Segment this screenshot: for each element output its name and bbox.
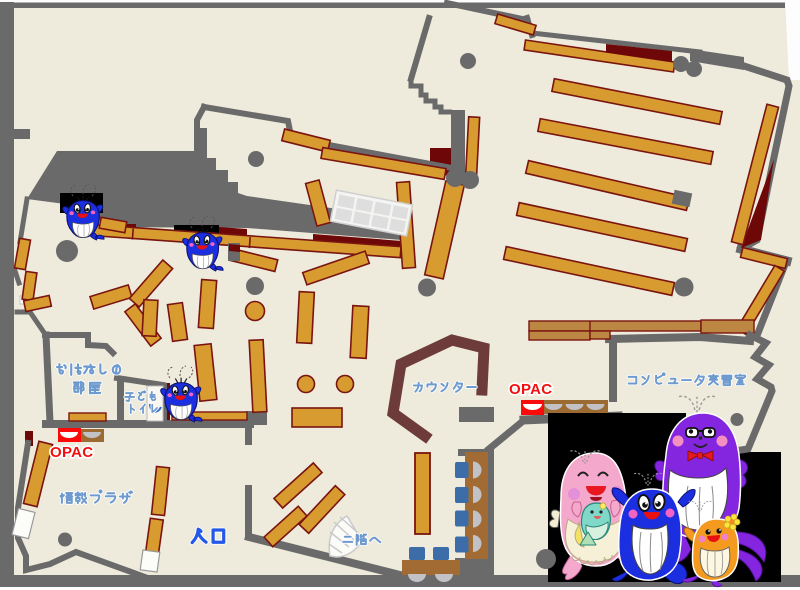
svg-text:OPAC: OPAC: [50, 444, 93, 461]
svg-text:OPAC: OPAC: [509, 381, 552, 398]
